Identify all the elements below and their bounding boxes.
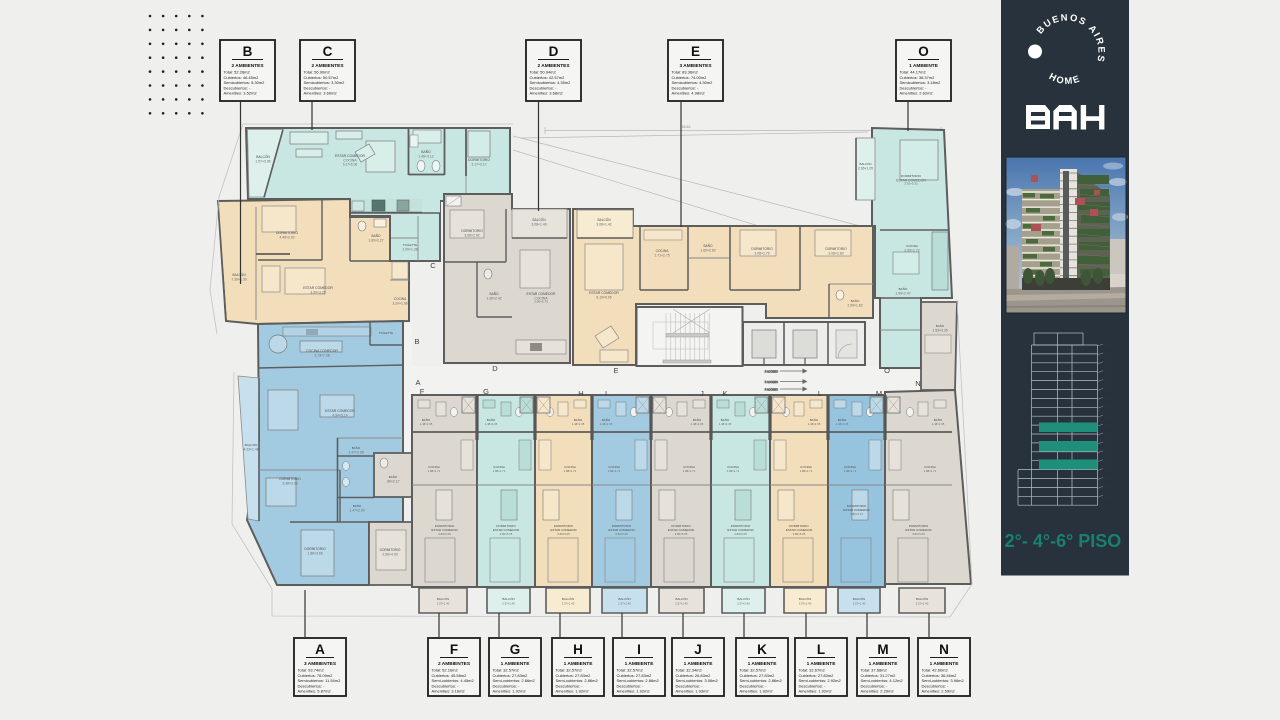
svg-text:DORMITORIO: DORMITORIO — [461, 229, 483, 233]
svg-text:Amenities: 3.68m2: Amenities: 3.68m2 — [530, 91, 564, 96]
svg-text:BAÑO: BAÑO — [703, 243, 713, 248]
svg-text:BALCÓN: BALCÓN — [562, 596, 574, 601]
svg-text:N: N — [915, 379, 920, 388]
svg-text:Total: 32.57m2: Total: 32.57m2 — [617, 668, 644, 673]
svg-text:Descubiertos: -: Descubiertos: - — [493, 683, 521, 688]
svg-text:1.60×2.62: 1.60×2.62 — [700, 249, 715, 253]
svg-text:COCINA: COCINA — [906, 244, 919, 248]
svg-text:··: ·· — [1106, 460, 1108, 463]
svg-text:4.23×1.48: 4.23×1.48 — [243, 448, 258, 452]
svg-text:2.57×1.40: 2.57×1.40 — [799, 602, 812, 606]
svg-text:1.88×1.71: 1.88×1.71 — [608, 469, 621, 473]
svg-text:Cubiertos: 27.83m2: Cubiertos: 27.83m2 — [799, 673, 835, 678]
svg-text:K: K — [757, 642, 767, 657]
svg-text:Cubiertos: 27.83m2: Cubiertos: 27.83m2 — [740, 673, 776, 678]
svg-text:BALCÓN: BALCÓN — [860, 161, 872, 166]
svg-text:Semi-cubiertos: 2.86m2: Semi-cubiertos: 2.86m2 — [493, 678, 536, 683]
svg-text:Descubiertos: -: Descubiertos: - — [617, 683, 645, 688]
svg-text:1 AMBIENTE: 1 AMBIENTE — [807, 661, 837, 667]
svg-text:2.57×1.40: 2.57×1.40 — [916, 602, 929, 606]
svg-text:BAÑO: BAÑO — [851, 298, 860, 303]
svg-text:Total: 32.57m2: Total: 32.57m2 — [556, 668, 583, 673]
svg-text:2.66×4.00: 2.66×4.00 — [382, 553, 397, 557]
svg-text:··: ·· — [1106, 353, 1108, 356]
svg-text:··: ·· — [1106, 371, 1108, 374]
svg-text:1.46×3.12: 1.46×3.12 — [418, 155, 433, 159]
svg-text:3.80×5.05: 3.80×5.05 — [500, 532, 513, 536]
svg-text:··: ·· — [1106, 495, 1108, 498]
svg-text:L: L — [818, 389, 822, 398]
svg-text:Cubiertos: 50.57m2: Cubiertos: 50.57m2 — [304, 75, 340, 80]
svg-text:Total: 52.16m2: Total: 52.16m2 — [432, 668, 459, 673]
svg-text:N: N — [939, 642, 949, 657]
svg-text:1 AMBIENTE: 1 AMBIENTE — [909, 63, 939, 69]
svg-text:ESTAR-COMEDOR: ESTAR-COMEDOR — [335, 154, 365, 158]
svg-text:DORMITORIO: DORMITORIO — [276, 231, 298, 235]
svg-text:Descubiertos: -: Descubiertos: - — [861, 683, 889, 688]
svg-text:K: K — [722, 389, 727, 398]
svg-text:Descubiertos: -: Descubiertos: - — [740, 683, 768, 688]
svg-text:C: C — [323, 44, 333, 59]
svg-text:Semi-cubiertos: 3.06m2: Semi-cubiertos: 3.06m2 — [676, 678, 719, 683]
svg-text:2.06×1.62: 2.06×1.62 — [847, 304, 862, 308]
svg-text:BAÑO: BAÑO — [421, 149, 431, 154]
svg-text:Amenities: 1.92m2: Amenities: 1.92m2 — [799, 689, 833, 694]
svg-text:BALCÓN: BALCÓN — [618, 596, 630, 601]
svg-text:··: ·· — [1106, 406, 1108, 409]
svg-text:Semicubiertos: 3.30m2: Semicubiertos: 3.30m2 — [304, 80, 346, 85]
svg-text:1.47×2.00: 1.47×2.00 — [349, 509, 364, 513]
svg-text:2.57×1.40: 2.57×1.40 — [618, 602, 631, 606]
svg-text:1.48×2.35: 1.48×2.35 — [485, 422, 498, 426]
svg-text:1.90×2.47: 1.90×2.47 — [895, 292, 910, 296]
svg-text:BAÑO: BAÑO — [899, 286, 908, 291]
svg-text:Total: 42.60m2: Total: 42.60m2 — [922, 668, 949, 673]
svg-text:Amenities: 1.92m2: Amenities: 1.92m2 — [493, 689, 527, 694]
svg-text:3.92×5.33: 3.92×5.33 — [904, 182, 918, 186]
svg-text:2.57×1.40: 2.57×1.40 — [737, 602, 750, 606]
svg-text:3.00×3.26: 3.00×3.26 — [310, 291, 325, 295]
svg-text:··: ·· — [1106, 389, 1108, 392]
svg-text:Amenities: 2.59m2: Amenities: 2.59m2 — [922, 689, 956, 694]
svg-text:M: M — [876, 389, 882, 398]
svg-text:P ACCESO: P ACCESO — [765, 370, 778, 374]
svg-text:··: ·· — [1106, 442, 1108, 445]
svg-text:2.80×4.71: 2.80×4.71 — [850, 512, 863, 516]
svg-text:BALCÓN: BALCÓN — [597, 217, 611, 222]
svg-text:O: O — [884, 366, 890, 375]
svg-text:1 AMBIENTE: 1 AMBIENTE — [748, 661, 778, 667]
svg-text:··: ·· — [1106, 397, 1108, 400]
svg-text:Cubiertos: 46.45m2: Cubiertos: 46.45m2 — [224, 75, 260, 80]
svg-text:6.17×6.06: 6.17×6.06 — [343, 163, 357, 167]
svg-text:Total: 56.90m2: Total: 56.90m2 — [304, 70, 331, 75]
svg-text:BAÑO: BAÑO — [389, 474, 398, 479]
svg-text:ESTAR COMEDOR: ESTAR COMEDOR — [589, 291, 619, 295]
svg-text:1.88×1.71: 1.88×1.71 — [683, 469, 696, 473]
svg-text:Amenities: 3.16m2: Amenities: 3.16m2 — [432, 689, 466, 694]
svg-text:··: ·· — [1106, 344, 1108, 347]
svg-text:4.94×5.14: 4.94×5.14 — [332, 414, 347, 418]
svg-text:1 AMBIENTE: 1 AMBIENTE — [684, 661, 714, 667]
svg-text:1 AMBIENTE: 1 AMBIENTE — [869, 661, 899, 667]
svg-text:COCINA: COCINA — [394, 297, 407, 301]
svg-text:3.08×2.79: 3.08×2.79 — [754, 252, 769, 256]
svg-text:1.88×1.71: 1.88×1.71 — [727, 469, 740, 473]
svg-text:2.71×2.75: 2.71×2.75 — [654, 254, 669, 258]
svg-text:18.63: 18.63 — [682, 125, 691, 129]
svg-text:P ACCESO: P ACCESO — [765, 380, 778, 384]
svg-text:B: B — [243, 44, 253, 59]
svg-text:1 AMBIENTE: 1 AMBIENTE — [564, 661, 594, 667]
svg-text:3.80×5.05: 3.80×5.05 — [734, 532, 747, 536]
svg-text:ESTAR COMEDOR: ESTAR COMEDOR — [527, 292, 556, 296]
svg-text:1.48×2.35: 1.48×2.35 — [420, 422, 433, 426]
svg-text:G: G — [483, 387, 489, 396]
svg-text:DORMITORIO: DORMITORIO — [825, 247, 847, 251]
svg-text:Semi-cubiertos: 2.92m2: Semi-cubiertos: 2.92m2 — [799, 678, 842, 683]
svg-text:1.30×2.42: 1.30×2.42 — [486, 297, 501, 301]
svg-text:Amenities: 4.98m2: Amenities: 4.98m2 — [672, 91, 706, 96]
svg-text:1.53×3.35: 1.53×3.35 — [932, 329, 947, 333]
svg-text:1.48×2.35: 1.48×2.35 — [836, 422, 849, 426]
svg-text:1.48×2.35: 1.48×2.35 — [719, 422, 732, 426]
svg-text:BAÑO: BAÑO — [353, 503, 362, 508]
svg-text:Amenities: 1.92m2: Amenities: 1.92m2 — [740, 689, 774, 694]
svg-text:J: J — [694, 642, 702, 657]
svg-text:DORMITORIO: DORMITORIO — [304, 547, 326, 551]
svg-text:BAÑO: BAÑO — [371, 233, 381, 238]
svg-text:··: ·· — [1106, 478, 1108, 481]
svg-text:BALCÓN: BALCÓN — [437, 596, 449, 601]
svg-text:Descubiertos: -: Descubiertos: - — [922, 683, 950, 688]
svg-text:E: E — [691, 44, 700, 59]
svg-text:Amenities: 3.52m2: Amenities: 3.52m2 — [224, 91, 258, 96]
svg-text:L: L — [817, 642, 825, 657]
svg-text:BALCÓN: BALCÓN — [502, 596, 514, 601]
svg-text:I: I — [605, 389, 607, 398]
svg-text:ESTAR COMEDOR: ESTAR COMEDOR — [325, 409, 355, 413]
svg-text:Semi-cubiertos: 2.86m2: Semi-cubiertos: 2.86m2 — [556, 678, 599, 683]
svg-text:DORMITORIO: DORMITORIO — [468, 158, 490, 162]
svg-text:Cubiertos: 27.83m2: Cubiertos: 27.83m2 — [556, 673, 592, 678]
svg-text:··: ·· — [1106, 433, 1108, 436]
svg-text:BALCÓN: BALCÓN — [916, 596, 928, 601]
svg-text:3.17×3.17: 3.17×3.17 — [471, 163, 486, 167]
svg-text:Cubiertos: 27.83m2: Cubiertos: 27.83m2 — [617, 673, 653, 678]
svg-text:4.49×2.92: 4.49×2.92 — [279, 236, 294, 240]
svg-text:3.38×3.08: 3.38×3.08 — [282, 482, 297, 486]
svg-text:Total: 83.36m2: Total: 83.36m2 — [672, 70, 699, 75]
svg-text:TOILETTE: TOILETTE — [379, 331, 393, 335]
svg-text:Descubiertos: -: Descubiertos: - — [224, 85, 252, 90]
svg-text:7.36×1.30: 7.36×1.30 — [231, 278, 246, 282]
svg-text:Cubiertos: 74.00m2: Cubiertos: 74.00m2 — [672, 75, 708, 80]
svg-text:BALCÓN: BALCÓN — [532, 217, 546, 222]
svg-text:Amenities: 2.29m2: Amenities: 2.29m2 — [861, 689, 895, 694]
svg-text:Total: 93.74m2: Total: 93.74m2 — [298, 668, 325, 673]
svg-text:D: D — [492, 364, 498, 373]
svg-text:2.57×1.40: 2.57×1.40 — [502, 602, 515, 606]
svg-text:2.06×1.05: 2.06×1.05 — [858, 167, 873, 171]
svg-text:Descubiertos: -: Descubiertos: - — [304, 85, 332, 90]
svg-text:Semicubiertos: 11.54m2: Semicubiertos: 11.54m2 — [298, 678, 342, 683]
svg-text:Descubiertos: -: Descubiertos: - — [900, 85, 928, 90]
svg-text:3.20×1.96: 3.20×1.96 — [392, 302, 407, 306]
svg-text:.66×2.17: .66×2.17 — [386, 480, 399, 484]
svg-text:BAÑO: BAÑO — [489, 291, 499, 296]
svg-text:1.88×1.71: 1.88×1.71 — [564, 469, 577, 473]
svg-text:Descubiertos: -: Descubiertos: - — [676, 683, 704, 688]
svg-text:ESTAR COMEDOR: ESTAR COMEDOR — [303, 286, 333, 290]
svg-text:Amenities: 1.92m2: Amenities: 1.92m2 — [617, 689, 651, 694]
svg-text:Semi-cubiertos: 2.86m2: Semi-cubiertos: 2.86m2 — [740, 678, 783, 683]
svg-text:Descubiertos: -: Descubiertos: - — [799, 683, 827, 688]
svg-text:H: H — [573, 642, 583, 657]
svg-text:2 AMBIENTES: 2 AMBIENTES — [537, 63, 570, 69]
svg-text:2.57×1.40: 2.57×1.40 — [562, 602, 575, 606]
svg-text:··: ·· — [1106, 380, 1108, 383]
svg-text:BALCÓN: BALCÓN — [232, 272, 246, 277]
svg-text:Semi-cubiertos: 4.12m2: Semi-cubiertos: 4.12m2 — [861, 678, 904, 683]
svg-text:3 AMBIENTES: 3 AMBIENTES — [304, 661, 337, 667]
svg-text:Amenities: 1.93m2: Amenities: 1.93m2 — [676, 689, 710, 694]
svg-text:Semi-cubiertos: 4.45m2: Semi-cubiertos: 4.45m2 — [432, 678, 475, 683]
svg-text:6.19×5.05: 6.19×5.05 — [596, 296, 611, 300]
svg-text:3.80×5.05: 3.80×5.05 — [912, 532, 925, 536]
svg-text:1.88×1.71: 1.88×1.71 — [493, 469, 506, 473]
svg-text:2 AMBIENTES: 2 AMBIENTES — [311, 63, 344, 69]
svg-text:3.73×7.08: 3.73×7.08 — [314, 354, 329, 358]
svg-text:BALCÓN: BALCÓN — [853, 596, 865, 601]
svg-text:3.80×5.05: 3.80×5.05 — [557, 532, 570, 536]
svg-text:1.00×1.36: 1.00×1.36 — [402, 248, 417, 252]
svg-text:Total: 32.34m2: Total: 32.34m2 — [676, 668, 703, 673]
svg-text:Descubiertos: -: Descubiertos: - — [672, 85, 700, 90]
svg-text:3.80×5.05: 3.80×5.05 — [793, 532, 806, 536]
svg-text:BALCÓN: BALCÓN — [245, 442, 258, 447]
svg-text:F: F — [450, 642, 458, 657]
svg-text:Semicubiertos: 4.35m2: Semicubiertos: 4.35m2 — [530, 80, 572, 85]
svg-text:BALCÓN: BALCÓN — [799, 596, 811, 601]
svg-text:O: O — [918, 44, 929, 59]
svg-text:D: D — [549, 44, 559, 59]
svg-text:A: A — [415, 378, 420, 387]
svg-text:Cubiertos: 36.46m2: Cubiertos: 36.46m2 — [922, 673, 958, 678]
svg-text:1.88×1.71: 1.88×1.71 — [924, 469, 937, 473]
svg-text:Cubiertos: 38.37m2: Cubiertos: 38.37m2 — [900, 75, 936, 80]
svg-text:2 AMBIENTES: 2 AMBIENTES — [438, 661, 471, 667]
svg-text:1.88×3.65: 1.88×3.65 — [307, 552, 322, 556]
svg-text:1 AMBIENTE: 1 AMBIENTE — [625, 661, 655, 667]
svg-text:P ACCESO: P ACCESO — [765, 388, 778, 392]
svg-text:Total: 50.94m2: Total: 50.94m2 — [530, 70, 557, 75]
svg-text:3.80×5.05: 3.80×5.05 — [675, 532, 688, 536]
svg-text:F: F — [420, 387, 425, 396]
svg-text:Amenities: 1.92m2: Amenities: 1.92m2 — [556, 689, 590, 694]
svg-text:DORMITORIO: DORMITORIO — [901, 174, 922, 178]
svg-text:1.47×2.05: 1.47×2.05 — [348, 451, 363, 455]
svg-text:Descubiertos: -: Descubiertos: - — [530, 85, 558, 90]
svg-text:Amenities: 5.87m2: Amenities: 5.87m2 — [298, 689, 332, 694]
svg-text:1.88×1.71: 1.88×1.71 — [800, 469, 813, 473]
svg-text:DORMITORIO: DORMITORIO — [751, 247, 773, 251]
svg-text:BALCÓN: BALCÓN — [737, 596, 749, 601]
svg-text:Semicubiertos: 3.18m2: Semicubiertos: 3.18m2 — [900, 80, 942, 85]
svg-text:Cubiertos: 31.27m2: Cubiertos: 31.27m2 — [861, 673, 897, 678]
svg-text:1.88×1.71: 1.88×1.71 — [844, 469, 857, 473]
svg-text:1.60×2.27: 1.60×2.27 — [368, 239, 383, 243]
svg-text:Amenities: 3.60m2: Amenities: 3.60m2 — [304, 91, 338, 96]
svg-text:Cubiertos: 45.58m2: Cubiertos: 45.58m2 — [432, 673, 468, 678]
svg-text:2.57×1.40: 2.57×1.40 — [853, 602, 866, 606]
svg-text:3.80×5.05: 3.80×5.05 — [438, 532, 451, 536]
svg-text:COCINA: COCINA — [656, 249, 670, 253]
svg-text:Semi-cubiertos: 3.96m2: Semi-cubiertos: 3.96m2 — [922, 678, 965, 683]
svg-text:··: ·· — [1106, 424, 1108, 427]
svg-text:Amenities: 2.62m2: Amenities: 2.62m2 — [900, 91, 934, 96]
svg-text:BAÑO: BAÑO — [352, 445, 361, 450]
svg-text:DORMITORIO: DORMITORIO — [279, 477, 301, 481]
svg-text:1.48×2.35: 1.48×2.35 — [808, 422, 821, 426]
svg-text:··: ·· — [1106, 415, 1108, 418]
svg-text:1.57×3.96: 1.57×3.96 — [255, 160, 270, 164]
svg-text:A: A — [315, 642, 325, 657]
svg-text:DORMITORIO: DORMITORIO — [380, 548, 401, 552]
svg-text:BALCÓN: BALCÓN — [675, 596, 687, 601]
svg-text:Cubiertos: 42.57m2: Cubiertos: 42.57m2 — [530, 75, 566, 80]
svg-text:1.88×1.71: 1.88×1.71 — [428, 469, 441, 473]
svg-text:··: ·· — [1106, 451, 1108, 454]
svg-text:E: E — [613, 366, 618, 375]
svg-text:C: C — [430, 261, 436, 270]
svg-text:··: ·· — [1106, 469, 1108, 472]
svg-text:Semicubiertos: 5.30m2: Semicubiertos: 5.30m2 — [224, 80, 266, 85]
svg-text:G: G — [510, 642, 521, 657]
svg-text:Total: 32.67m2: Total: 32.67m2 — [799, 668, 826, 673]
svg-text:Semicubiertos: 4.30m2: Semicubiertos: 4.30m2 — [672, 80, 714, 85]
svg-text:1.48×2.35: 1.48×2.35 — [600, 422, 613, 426]
svg-text:Total: 32.57m2: Total: 32.57m2 — [740, 668, 767, 673]
svg-text:Cubiertos: 76.09m2: Cubiertos: 76.09m2 — [298, 673, 334, 678]
svg-text:1 AMBIENTE: 1 AMBIENTE — [930, 661, 960, 667]
svg-text:Total: 32.57m2: Total: 32.57m2 — [493, 668, 520, 673]
svg-text:Total: 44.17m2: Total: 44.17m2 — [900, 70, 927, 75]
svg-text:1.48×2.35: 1.48×2.35 — [572, 422, 585, 426]
svg-text:J: J — [700, 389, 704, 398]
svg-text:B: B — [414, 337, 419, 346]
svg-text:I: I — [637, 642, 641, 657]
svg-text:2.57×1.40: 2.57×1.40 — [437, 602, 450, 606]
svg-text:2.09×1.72: 2.09×1.72 — [904, 249, 919, 253]
svg-text:3 AMBIENTES: 3 AMBIENTES — [679, 63, 712, 69]
svg-text:1.48×2.35: 1.48×2.35 — [691, 422, 704, 426]
svg-text:2 AMBIENTES: 2 AMBIENTES — [231, 63, 264, 69]
svg-text:M: M — [877, 642, 888, 657]
svg-text:Total: 37.68m2: Total: 37.68m2 — [861, 668, 888, 673]
svg-text:3.08×1.40: 3.08×1.40 — [531, 223, 546, 227]
svg-text:2.57×1.40: 2.57×1.40 — [675, 602, 688, 606]
svg-text:3.08×2.92: 3.08×2.92 — [464, 234, 479, 238]
svg-text:Descubiertos: -: Descubiertos: - — [432, 683, 460, 688]
svg-text:Semi-cubiertos: 2.86m2: Semi-cubiertos: 2.86m2 — [617, 678, 660, 683]
svg-text:··: ·· — [1106, 362, 1108, 365]
svg-text:··: ·· — [1106, 486, 1108, 489]
svg-text:H: H — [578, 389, 583, 398]
svg-text:BALCÓN: BALCÓN — [256, 154, 270, 159]
svg-text:2°- 4°-6° PISO: 2°- 4°-6° PISO — [1005, 531, 1122, 551]
svg-text:Descubiertos: -: Descubiertos: - — [298, 683, 326, 688]
svg-text:Descubiertos: -: Descubiertos: - — [556, 683, 584, 688]
svg-text:Cubiertos: 27.83m2: Cubiertos: 27.83m2 — [493, 673, 529, 678]
svg-text:COCINA COMEDOR: COCINA COMEDOR — [306, 349, 338, 353]
svg-text:1 AMBIENTE: 1 AMBIENTE — [501, 661, 531, 667]
svg-text:BAÑO: BAÑO — [936, 323, 945, 328]
svg-text:Total: 52.28m2: Total: 52.28m2 — [224, 70, 251, 75]
svg-text:3.08×2.80: 3.08×2.80 — [828, 252, 843, 256]
svg-text:3.08×5.75: 3.08×5.75 — [534, 300, 548, 304]
svg-text:3.08×1.42: 3.08×1.42 — [596, 223, 611, 227]
svg-text:3.80×5.05: 3.80×5.05 — [615, 532, 628, 536]
svg-text:1.48×2.35: 1.48×2.35 — [932, 422, 945, 426]
svg-text:TOILETTE: TOILETTE — [403, 243, 417, 247]
svg-text:Cubiertos: 26.83m2: Cubiertos: 26.83m2 — [676, 673, 712, 678]
